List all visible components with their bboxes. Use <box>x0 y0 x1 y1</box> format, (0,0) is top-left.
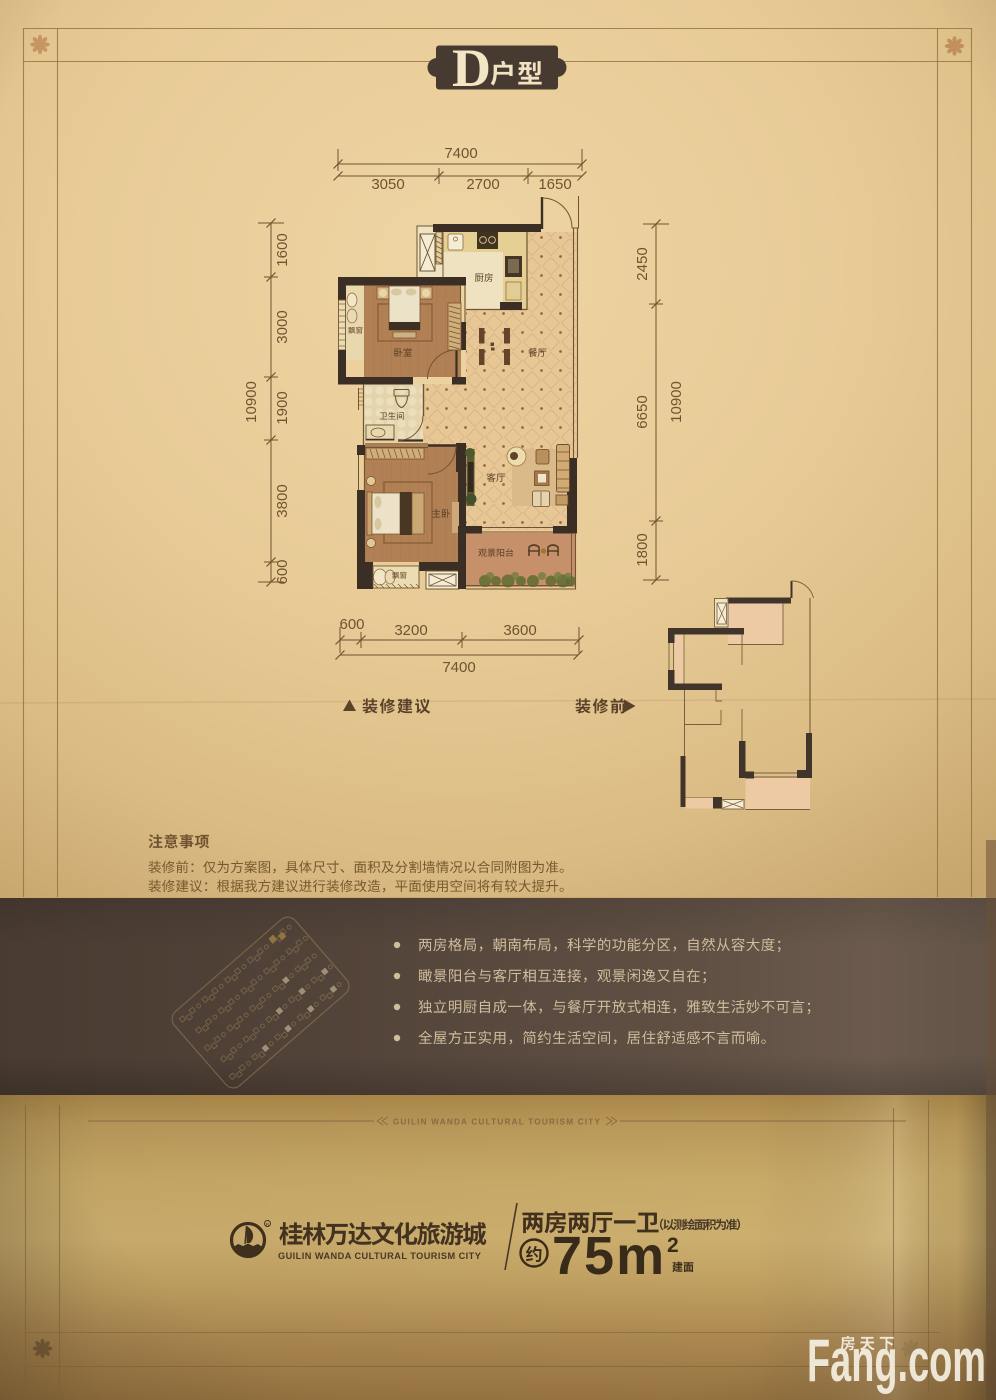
svg-text:1800: 1800 <box>634 533 651 566</box>
svg-text:10900: 10900 <box>243 381 260 423</box>
svg-text:10900: 10900 <box>668 381 685 423</box>
svg-text:75m: 75m <box>552 1226 666 1286</box>
svg-text:7400: 7400 <box>444 145 477 162</box>
svg-text:600: 600 <box>274 559 291 584</box>
svg-text:2700: 2700 <box>466 176 499 193</box>
svg-text:1900: 1900 <box>274 391 291 424</box>
svg-text:3800: 3800 <box>274 484 291 517</box>
svg-text:7400: 7400 <box>442 659 475 676</box>
svg-text:2: 2 <box>667 1234 679 1257</box>
svg-text:3000: 3000 <box>274 310 291 343</box>
svg-text:GUILIN WANDA CULTURAL TOURISM: GUILIN WANDA CULTURAL TOURISM CITY <box>278 1251 481 1261</box>
svg-text:6650: 6650 <box>634 395 651 428</box>
svg-text:2450: 2450 <box>634 247 651 280</box>
svg-text:GUILIN WANDA CULTURAL TOURISM: GUILIN WANDA CULTURAL TOURISM CITY <box>393 1118 601 1127</box>
svg-text:3050: 3050 <box>371 176 404 193</box>
svg-text:1600: 1600 <box>274 233 291 266</box>
svg-text:Fang.com: Fang.com <box>807 1327 986 1394</box>
svg-text:600: 600 <box>339 616 364 633</box>
svg-text:D: D <box>452 38 491 98</box>
svg-text:3600: 3600 <box>503 622 536 639</box>
svg-text:1650: 1650 <box>538 176 571 193</box>
svg-text:3200: 3200 <box>394 622 427 639</box>
